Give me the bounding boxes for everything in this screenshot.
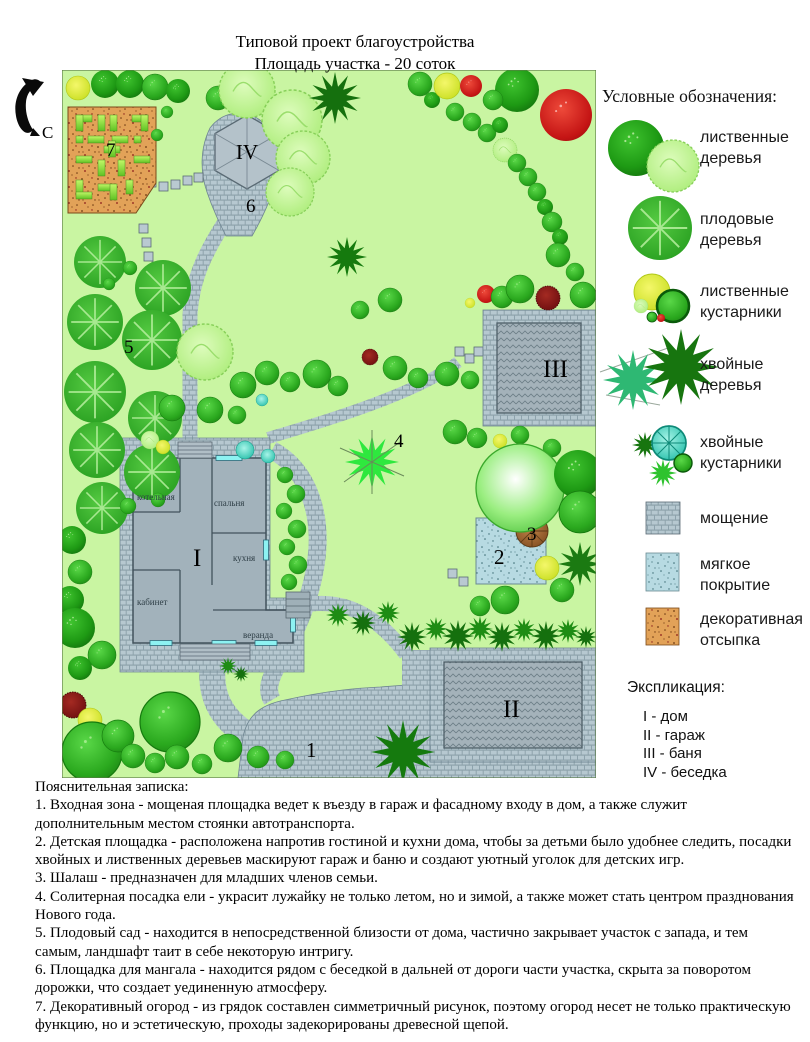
- room-study: кабинет: [137, 597, 167, 607]
- north-label: С: [42, 123, 53, 142]
- legend-label-deciduous-trees: лиственныедеревья: [700, 127, 808, 169]
- explication-house: I - дом: [643, 708, 727, 727]
- note-item-2: 2. Детская площадка - расположена напрот…: [35, 833, 798, 870]
- bathhouse: [483, 310, 596, 426]
- explication-bath: III - баня: [643, 745, 727, 764]
- room-kitchen: кухня: [233, 553, 255, 563]
- note-item-4: 4. Солитерная посадка ели - украсит лужа…: [35, 888, 798, 925]
- label-spruce: 4: [394, 431, 404, 452]
- note-item-5: 5. Плодовый сад - находится в непосредст…: [35, 924, 798, 961]
- label-bbq-area: 6: [246, 196, 256, 217]
- explanatory-note: Пояснительная записка: 1. Входная зона -…: [35, 778, 798, 1034]
- label-gazebo: IV: [236, 140, 258, 164]
- legend-header: Условные обозначения:: [602, 86, 807, 107]
- label-shalash: 3: [527, 524, 537, 545]
- room-bedroom: спальня: [214, 498, 244, 508]
- page-title: Типовой проект благоустройства Площадь у…: [125, 31, 585, 75]
- legend-icon-deciduous-shrubs: [634, 274, 689, 322]
- note-item-6: 6. Площадка для мангала - находится рядо…: [35, 961, 798, 998]
- garden-bench: [286, 592, 310, 618]
- note-item-1: 1. Входная зона - мощеная площадка ведет…: [35, 796, 798, 833]
- label-kitchen-garden: 7: [106, 140, 116, 161]
- note-item-3: 3. Шалаш - предназначен для младших член…: [35, 869, 798, 887]
- label-orchard: 5: [124, 337, 134, 358]
- title-line2: Площадь участка - 20 соток: [125, 53, 585, 75]
- room-boiler: котельная: [137, 492, 175, 502]
- legend-icon-deciduous-trees: [608, 120, 699, 192]
- legend-label-soft-surface: мягкоепокрытие: [700, 554, 808, 596]
- title-line1: Типовой проект благоустройства: [125, 31, 585, 53]
- label-playground: 2: [494, 545, 505, 569]
- room-veranda: веранда: [243, 630, 273, 640]
- legend-label-decorative-mulch: декоративнаяотсыпка: [700, 609, 808, 651]
- label-house: I: [193, 545, 201, 572]
- legend-icon-soft-surface: [646, 553, 679, 591]
- legend-label-paving: мощение: [700, 508, 808, 529]
- explication-garage: II - гараж: [643, 727, 727, 746]
- legend-icon-decorative-mulch: [646, 608, 679, 645]
- explication-list: I - дом II - гараж III - баня IV - бесед…: [643, 708, 727, 782]
- landscape-plan-page: 7 6 5 4 2 3 1 IV III II I котельная спал…: [0, 0, 810, 1042]
- label-entrance: 1: [306, 738, 317, 762]
- legend-label-conifer-shrubs: хвойныекустарники: [700, 432, 808, 474]
- legend-icon-fruit-trees: [628, 196, 692, 260]
- legend-label-conifer-trees: хвойныедеревья: [700, 354, 808, 396]
- legend-label-fruit-trees: плодовыедеревья: [700, 209, 808, 251]
- north-arrow-icon: С: [15, 78, 53, 142]
- legend-icon-conifer-shrubs: [632, 426, 692, 487]
- legend-label-deciduous-shrubs: лиственныекустарники: [700, 281, 808, 323]
- legend-icon-paving: [646, 502, 680, 534]
- note-item-7: 7. Декоративный огород - из грядок соста…: [35, 998, 798, 1035]
- label-garage: II: [503, 696, 520, 723]
- label-bath: III: [543, 356, 568, 383]
- garage-side-paving: [402, 650, 432, 706]
- explication-header: Экспликация:: [627, 679, 725, 697]
- notes-header: Пояснительная записка:: [35, 778, 798, 796]
